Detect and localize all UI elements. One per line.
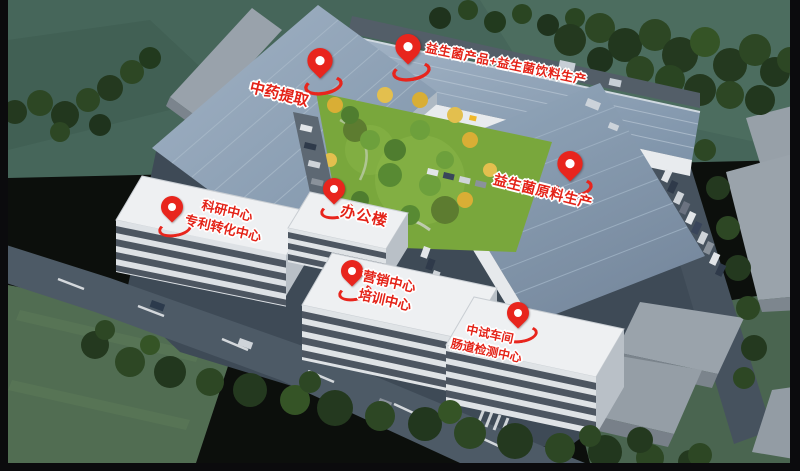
location-pin-icon: [385, 34, 431, 82]
campus-aerial-view: 中药提取 益生菌产品+益生菌饮料生产 益生菌原料生产 科研中心 专利转化中心 办…: [0, 0, 800, 471]
